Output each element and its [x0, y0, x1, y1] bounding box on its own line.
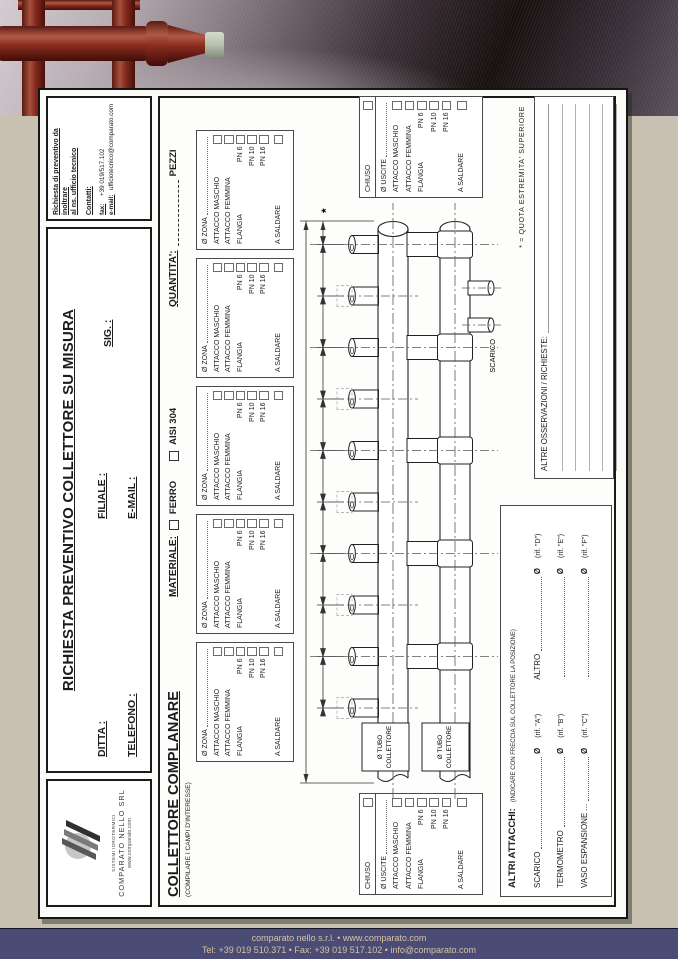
rif-label: (rif. "C") — [582, 694, 589, 738]
attacco-femmina-label: ATTACCO FEMMINA — [406, 125, 413, 192]
rif-label: (rif. "A") — [535, 694, 542, 738]
a-saldare-label: A SALDARE — [458, 850, 465, 889]
end-box-right: CHIUSO Ø USCITE ATTACCO MASCHIO ATTACCO … — [359, 96, 483, 198]
attacco-femmina-label: ATTACCO FEMMINA — [225, 177, 232, 244]
ruled-line[interactable] — [549, 104, 563, 471]
rif-label: (rif. "E") — [558, 514, 565, 558]
attacco-femmina-label: ATTACCO FEMMINA — [225, 561, 232, 628]
attacco-label: TERMOMETRO — [556, 830, 565, 888]
tube-label-1b: COLLETTORE — [386, 726, 393, 769]
altri-attacchi-title: ALTRI ATTACCHI: — [507, 808, 518, 888]
pipe-main-run — [0, 26, 152, 61]
osservazioni-label: ALTRE OSSERVAZIONI / RICHIESTE: — [540, 336, 549, 471]
checkbox-chiuso[interactable] — [363, 101, 373, 111]
pipe-collar — [146, 21, 168, 66]
zone-box: Ø ZONA ATTACCO MASCHIO ATTACCO FEMMINA F… — [196, 642, 294, 762]
footer-line1: comparato nello s.r.l. • www.comparato.c… — [0, 933, 678, 945]
tube-diameter-box-1[interactable] — [362, 723, 409, 771]
divider — [375, 794, 376, 894]
pn16-label: PN 16 — [260, 147, 267, 166]
tube-label-2a: Ø TUBO — [437, 735, 444, 759]
a-saldare-label: A SALDARE — [458, 153, 465, 192]
zona-fill-in-line[interactable] — [203, 521, 208, 599]
pn6-label: PN 6 — [237, 531, 244, 547]
checkbox-pn10[interactable] — [429, 798, 439, 808]
zona-fill-in-line[interactable] — [203, 137, 208, 215]
checkbox-pn10[interactable] — [247, 391, 257, 401]
materiale-group: MATERIALE: FERRO AISI 304 — [168, 408, 179, 597]
checkbox-attacco-femmina[interactable] — [405, 798, 415, 808]
checkbox-attacco-maschio[interactable] — [213, 519, 223, 529]
zona-label: Ø ZONA — [202, 473, 209, 500]
logo-company-name: COMPARATO NELLO SRL — [117, 781, 126, 905]
pn6-label: PN 6 — [237, 659, 244, 675]
attacco-label: VASO ESPANSIONE ... — [580, 804, 589, 888]
a-saldare-label: A SALDARE — [275, 717, 282, 756]
flangia-label: FLANGIA — [418, 162, 425, 192]
collector-tube-2 — [440, 229, 470, 778]
flangia-label: FLANGIA — [237, 598, 244, 628]
pn6-label: PN 6 — [237, 403, 244, 419]
attacco-maschio-label: ATTACCO MASCHIO — [214, 305, 221, 372]
pn16-label: PN 16 — [260, 659, 267, 678]
chiuso-label: CHIUSO — [365, 165, 372, 192]
scarico-label: SCARICO — [488, 339, 497, 373]
uscite-fill-in-line[interactable] — [382, 103, 387, 157]
uscite-fill-in-line[interactable] — [382, 800, 387, 854]
a-saldare-label: A SALDARE — [275, 589, 282, 628]
pn6-label: PN 6 — [418, 113, 425, 129]
uscite-label: Ø USCITE — [381, 856, 388, 889]
landscape-form: SISTEMI IDROTERMICI COMPARATO NELLO SRL … — [40, 90, 622, 913]
zona-fill-in-line[interactable] — [203, 265, 208, 343]
pipe-end-cap — [205, 32, 224, 57]
pn16-label: PN 16 — [443, 810, 450, 829]
pn10-label: PN 10 — [249, 147, 256, 166]
uscite-label: Ø USCITE — [381, 159, 388, 192]
option-ferro: FERRO — [168, 481, 179, 514]
checkbox-pn6[interactable] — [417, 798, 427, 808]
diameter-symbol: Ø — [533, 568, 542, 574]
quantita-fill-in-line[interactable] — [169, 180, 179, 246]
tube-label-1a: Ø TUBO — [377, 735, 384, 759]
comparato-logo-icon — [54, 816, 104, 870]
checkbox-a-saldare[interactable] — [457, 101, 467, 111]
quantita-group: QUANTITA': PEZZI — [168, 149, 179, 307]
field-telefono[interactable]: TELEFONO : — [126, 693, 138, 757]
fill-in-line[interactable] — [560, 577, 565, 677]
checkbox-pn10[interactable] — [429, 101, 439, 111]
pn16-label: PN 16 — [443, 113, 450, 132]
section-subtitle: (COMPILARE I CAMPI D'INTERESSE) — [185, 782, 192, 897]
fill-in-line[interactable] — [584, 757, 589, 801]
pn16-label: PN 16 — [260, 275, 267, 294]
a-saldare-label: A SALDARE — [275, 333, 282, 372]
checkbox-attacco-maschio[interactable] — [213, 647, 223, 657]
checkbox-pn6[interactable] — [236, 391, 246, 401]
altri-attacchi-box: ALTRI ATTACCHI: (INDICARE CON FRECCIA SU… — [500, 505, 612, 897]
field-ditta[interactable]: DITTA : — [96, 721, 108, 757]
checkbox-pn16[interactable] — [442, 798, 452, 808]
scarico-stub-2 — [468, 281, 491, 295]
checkbox-chiuso[interactable] — [363, 798, 373, 808]
pezzi-label: PEZZI — [168, 149, 179, 176]
attacco-femmina-label: ATTACCO FEMMINA — [225, 689, 232, 756]
checkbox-a-saldare[interactable] — [274, 391, 284, 401]
checkbox-pn6[interactable] — [236, 135, 246, 145]
checkbox-a-saldare[interactable] — [457, 798, 467, 808]
checkbox-attacco-maschio[interactable] — [213, 263, 223, 273]
attacco-maschio-label: ATTACCO MASCHIO — [214, 433, 221, 500]
checkbox-a-saldare[interactable] — [274, 647, 284, 657]
email-address[interactable]: ufficiotecnico@comparato.com — [108, 104, 115, 190]
attacco-femmina-label: ATTACCO FEMMINA — [225, 433, 232, 500]
ruled-line[interactable] — [563, 104, 577, 471]
field-filiale[interactable]: FILIALE : — [96, 473, 108, 519]
logo-website: www.comparato.com — [127, 781, 133, 905]
scarico-stub-1 — [468, 318, 491, 332]
fill-in-line[interactable] — [537, 577, 542, 650]
ruled-line[interactable] — [590, 104, 604, 471]
rif-label: (rif. "B") — [558, 694, 565, 738]
tube-diameter-box-2[interactable] — [422, 723, 469, 771]
checkbox-pn10[interactable] — [247, 519, 257, 529]
quantita-label: QUANTITA': — [168, 250, 179, 307]
attacco-maschio-label: ATTACCO MASCHIO — [214, 689, 221, 756]
form-header-box: RICHIESTA PREVENTIVO COLLETTORE SU MISUR… — [46, 227, 152, 773]
checkbox-pn16[interactable] — [259, 135, 269, 145]
diameter-symbol: Ø — [556, 748, 565, 754]
contact-box: Richiesta di preventivo da inoltrare al … — [46, 96, 152, 221]
logo-box: SISTEMI IDROTERMICI COMPARATO NELLO SRL … — [46, 779, 152, 907]
pn10-label: PN 10 — [249, 403, 256, 422]
checkbox-aisi304[interactable] — [169, 451, 179, 461]
checkbox-pn16[interactable] — [259, 263, 269, 273]
altri-attacchi-note: (INDICARE CON FRECCIA SUL COLLETTORE LA … — [511, 629, 517, 802]
rif-label: (rif. "F") — [582, 514, 589, 558]
section-title: COLLETTORE COMPLANARE — [166, 691, 182, 897]
ruled-line[interactable] — [576, 104, 590, 471]
pn10-label: PN 10 — [249, 659, 256, 678]
pn6-label: PN 6 — [237, 147, 244, 163]
option-aisi304: AISI 304 — [168, 408, 179, 445]
attacco-maschio-label: ATTACCO MASCHIO — [214, 561, 221, 628]
pn16-label: PN 16 — [260, 531, 267, 550]
chiuso-label: CHIUSO — [365, 862, 372, 889]
zona-fill-in-line[interactable] — [203, 649, 208, 727]
ruled-line[interactable] — [603, 104, 617, 471]
zona-label: Ø ZONA — [202, 729, 209, 756]
pipe-cone — [168, 25, 206, 63]
pn10-label: PN 10 — [249, 531, 256, 550]
tube-1-break-symbol — [378, 775, 408, 782]
contact-line1: Richiesta di preventivo da inoltrare — [53, 102, 71, 215]
zona-label: Ø ZONA — [202, 345, 209, 372]
tube-1-end-cap — [378, 222, 408, 237]
flangia-label: FLANGIA — [418, 859, 425, 889]
attacco-maschio-label: ATTACCO MASCHIO — [393, 125, 400, 192]
rif-label: (rif. "D") — [535, 514, 542, 558]
checkbox-pn16[interactable] — [259, 391, 269, 401]
checkbox-attacco-maschio[interactable] — [392, 101, 402, 111]
a-saldare-label: A SALDARE — [275, 205, 282, 244]
field-sig[interactable]: SIG. : — [102, 320, 114, 347]
pn10-label: PN 10 — [431, 810, 438, 829]
zone-box: Ø ZONA ATTACCO MASCHIO ATTACCO FEMMINA F… — [196, 386, 294, 506]
checkbox-attacco-femmina[interactable] — [224, 647, 234, 657]
checkbox-a-saldare[interactable] — [274, 135, 284, 145]
zone-box: Ø ZONA ATTACCO MASCHIO ATTACCO FEMMINA F… — [196, 258, 294, 378]
flangia-label: FLANGIA — [237, 214, 244, 244]
zona-label: Ø ZONA — [202, 217, 209, 244]
zone-boxes-row: Ø ZONA ATTACCO MASCHIO ATTACCO FEMMINA F… — [196, 130, 294, 762]
fax-label: fax: — [99, 204, 106, 215]
fill-in-line[interactable] — [537, 757, 542, 849]
checkbox-attacco-maschio[interactable] — [213, 391, 223, 401]
divider — [375, 97, 376, 197]
materiale-label: MATERIALE: — [168, 536, 179, 597]
dimension-arrow — [304, 221, 309, 230]
attacco-label: ALTRO — [533, 654, 542, 680]
checkbox-attacco-femmina[interactable] — [224, 263, 234, 273]
tube-label-2b: COLLETTORE — [446, 726, 453, 769]
diameter-symbol: Ø — [533, 748, 542, 754]
email-label: e-mail: — [108, 195, 115, 215]
a-saldare-label: A SALDARE — [275, 461, 282, 500]
checkbox-attacco-maschio[interactable] — [392, 798, 402, 808]
diameter-symbol: Ø — [580, 568, 589, 574]
main-form-box: COLLETTORE COMPLANARE (COMPILARE I CAMPI… — [158, 96, 616, 907]
checkbox-pn10[interactable] — [247, 263, 257, 273]
pn10-label: PN 10 — [431, 113, 438, 132]
field-email[interactable]: E-MAIL : — [126, 477, 138, 519]
contact-contatti: Contatti: — [86, 102, 95, 215]
checkbox-attacco-femmina[interactable] — [224, 391, 234, 401]
form-page: SISTEMI IDROTERMICI COMPARATO NELLO SRL … — [38, 88, 628, 919]
attacco-femmina-label: ATTACCO FEMMINA — [225, 305, 232, 372]
checkbox-pn16[interactable] — [442, 101, 452, 111]
fax-number: +39 019/517.102 — [99, 149, 106, 196]
tube-2-end-cap — [440, 222, 470, 237]
checkbox-attacco-femmina[interactable] — [224, 135, 234, 145]
checkbox-pn6[interactable] — [236, 519, 246, 529]
checkbox-pn6[interactable] — [236, 647, 246, 657]
fill-in-line[interactable] — [544, 104, 549, 333]
logo-tagline: SISTEMI IDROTERMICI — [111, 781, 116, 905]
quota-note: * = QUOTA ESTREMITA' SUPERIORE — [517, 106, 526, 248]
altri-row-3: VASO ESPANSIONE ...Ø (rif. "C") Ø (rif. … — [580, 514, 589, 888]
pn10-label: PN 10 — [249, 275, 256, 294]
attacco-maschio-label: ATTACCO MASCHIO — [214, 177, 221, 244]
checkbox-a-saldare[interactable] — [274, 519, 284, 529]
fill-in-line[interactable] — [560, 757, 565, 827]
form-title: RICHIESTA PREVENTIVO COLLETTORE SU MISUR… — [60, 229, 77, 771]
dimension-arrow — [321, 221, 326, 230]
diameter-symbol: Ø — [556, 568, 565, 574]
pn6-label: PN 6 — [237, 275, 244, 291]
attacco-femmina-label: ATTACCO FEMMINA — [406, 822, 413, 889]
pn16-label: PN 16 — [260, 403, 267, 422]
checkbox-pn16[interactable] — [259, 519, 269, 529]
checkbox-pn10[interactable] — [247, 647, 257, 657]
checkbox-pn16[interactable] — [259, 647, 269, 657]
collector-tube-1 — [378, 229, 408, 778]
altri-row-2: TERMOMETROØ (rif. "B") Ø (rif. "E") — [556, 514, 565, 888]
contact-line2: al ns. ufficio tecnico — [71, 102, 80, 215]
attacco-label: SCARICO — [533, 852, 542, 888]
zone-box: Ø ZONA ATTACCO MASCHIO ATTACCO FEMMINA F… — [196, 130, 294, 250]
flangia-label: FLANGIA — [237, 470, 244, 500]
footer-bar: comparato nello s.r.l. • www.comparato.c… — [0, 928, 678, 959]
footer-line2: Tel: +39 019 510.371 • Fax: +39 019 517.… — [0, 945, 678, 957]
end-box-left: CHIUSO Ø USCITE ATTACCO MASCHIO ATTACCO … — [359, 793, 483, 895]
attacco-maschio-label: ATTACCO MASCHIO — [393, 822, 400, 889]
asterisk-mark: * — [319, 208, 333, 213]
fill-in-line[interactable] — [584, 577, 589, 677]
zona-label: Ø ZONA — [202, 601, 209, 628]
tube-2-break-symbol — [440, 775, 470, 782]
checkbox-attacco-femmina[interactable] — [405, 101, 415, 111]
checkbox-a-saldare[interactable] — [274, 263, 284, 273]
checkbox-attacco-femmina[interactable] — [224, 519, 234, 529]
zone-box: Ø ZONA ATTACCO MASCHIO ATTACCO FEMMINA F… — [196, 514, 294, 634]
checkbox-pn6[interactable] — [236, 263, 246, 273]
dimension-arrow — [304, 774, 309, 783]
checkbox-ferro[interactable] — [169, 520, 179, 530]
checkbox-pn6[interactable] — [417, 101, 427, 111]
checkbox-pn10[interactable] — [247, 135, 257, 145]
flangia-label: FLANGIA — [237, 342, 244, 372]
flangia-label: FLANGIA — [237, 726, 244, 756]
checkbox-attacco-maschio[interactable] — [213, 135, 223, 145]
altri-row-1: SCARICOØ (rif. "A") ALTROØ (rif. "D") — [533, 514, 542, 888]
diameter-symbol: Ø — [580, 748, 589, 754]
zona-fill-in-line[interactable] — [203, 393, 208, 471]
pn6-label: PN 6 — [418, 810, 425, 826]
osservazioni-box: ALTRE OSSERVAZIONI / RICHIESTE: — [534, 96, 614, 479]
